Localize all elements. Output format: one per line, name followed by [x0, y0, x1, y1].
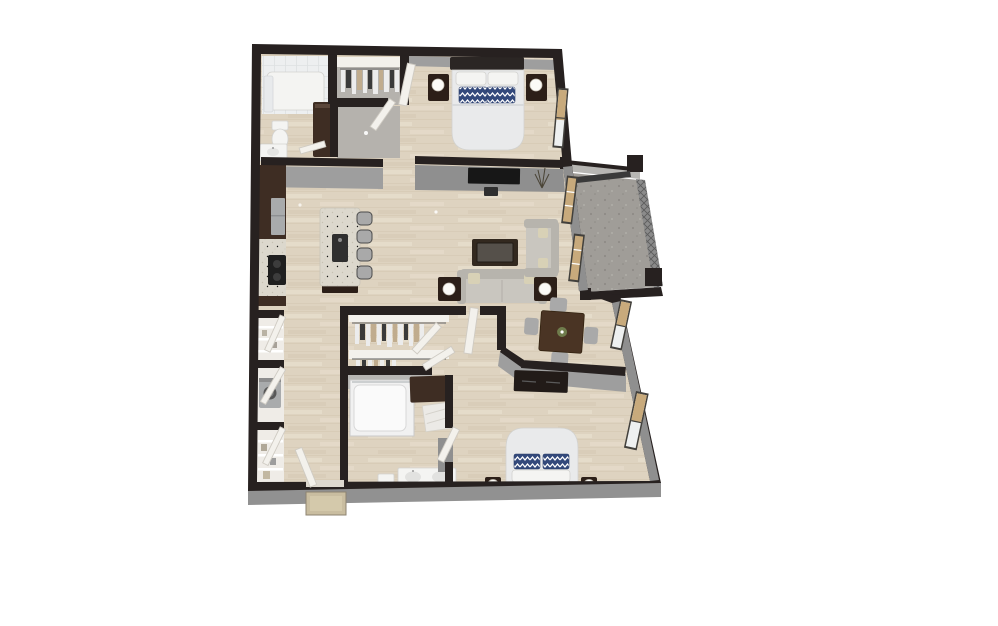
balcony-post-se [645, 268, 662, 286]
bed2-pillow-white [512, 470, 570, 482]
balcony-post-ne [627, 155, 643, 172]
duvet-fold [452, 104, 524, 106]
recessed-light [434, 210, 437, 213]
bed2-pillow-chevron-right [543, 454, 569, 469]
floor-plan-page [0, 0, 998, 626]
bar-stool [357, 266, 372, 279]
kitchen-island [320, 208, 360, 293]
linen-cabinet-top [315, 104, 330, 108]
fridge-divider [271, 215, 285, 216]
hallway-floor-shadow [337, 106, 400, 158]
closet-shelf-band [337, 57, 400, 67]
bed2-pillow-chevron-left [514, 454, 540, 469]
lower-cabinet [256, 296, 286, 306]
entry-step [306, 492, 346, 515]
ceiling-light [364, 131, 368, 135]
wall-mounted-tv [468, 168, 520, 185]
table-lamp-left [432, 79, 444, 91]
door-mat [310, 496, 342, 511]
bar-stool [357, 248, 372, 261]
dresser [514, 370, 569, 393]
recessed-light [298, 203, 301, 206]
floor-plan-render [0, 0, 998, 626]
end-table-lamp-right [539, 283, 551, 295]
loveseat-arm-bottom [524, 268, 558, 277]
loveseat-pillow-top [538, 228, 548, 238]
bar-stool [357, 212, 372, 225]
end-table-lamp-left [443, 283, 455, 295]
room-primary-closet [337, 57, 400, 105]
dining-chair-top [549, 297, 567, 312]
pillow-chevron-left [459, 87, 487, 103]
table-lamp-right [530, 79, 542, 91]
pillow-chevron-right [487, 87, 515, 103]
cooktop [268, 255, 286, 285]
island-faucet [338, 238, 342, 242]
interior-hallway [337, 106, 400, 158]
tub-shower [350, 380, 414, 436]
bar-stool [357, 230, 372, 243]
loveseat-arm-top [524, 219, 558, 228]
pillow-white-left [456, 72, 486, 85]
pillow-white-right [488, 72, 518, 85]
media-box [484, 187, 498, 196]
loveseat [524, 219, 559, 277]
sofa-pillow-left [468, 273, 480, 284]
coffee-table [472, 239, 518, 266]
dining-chair-left [524, 317, 539, 335]
headboard [450, 57, 524, 70]
dining-chair-right [583, 327, 598, 345]
loveseat-pillow-bottom [538, 258, 548, 268]
shower-curtain [264, 76, 273, 112]
bath2-linen-cabinet [410, 375, 451, 402]
refrigerator [271, 198, 285, 235]
